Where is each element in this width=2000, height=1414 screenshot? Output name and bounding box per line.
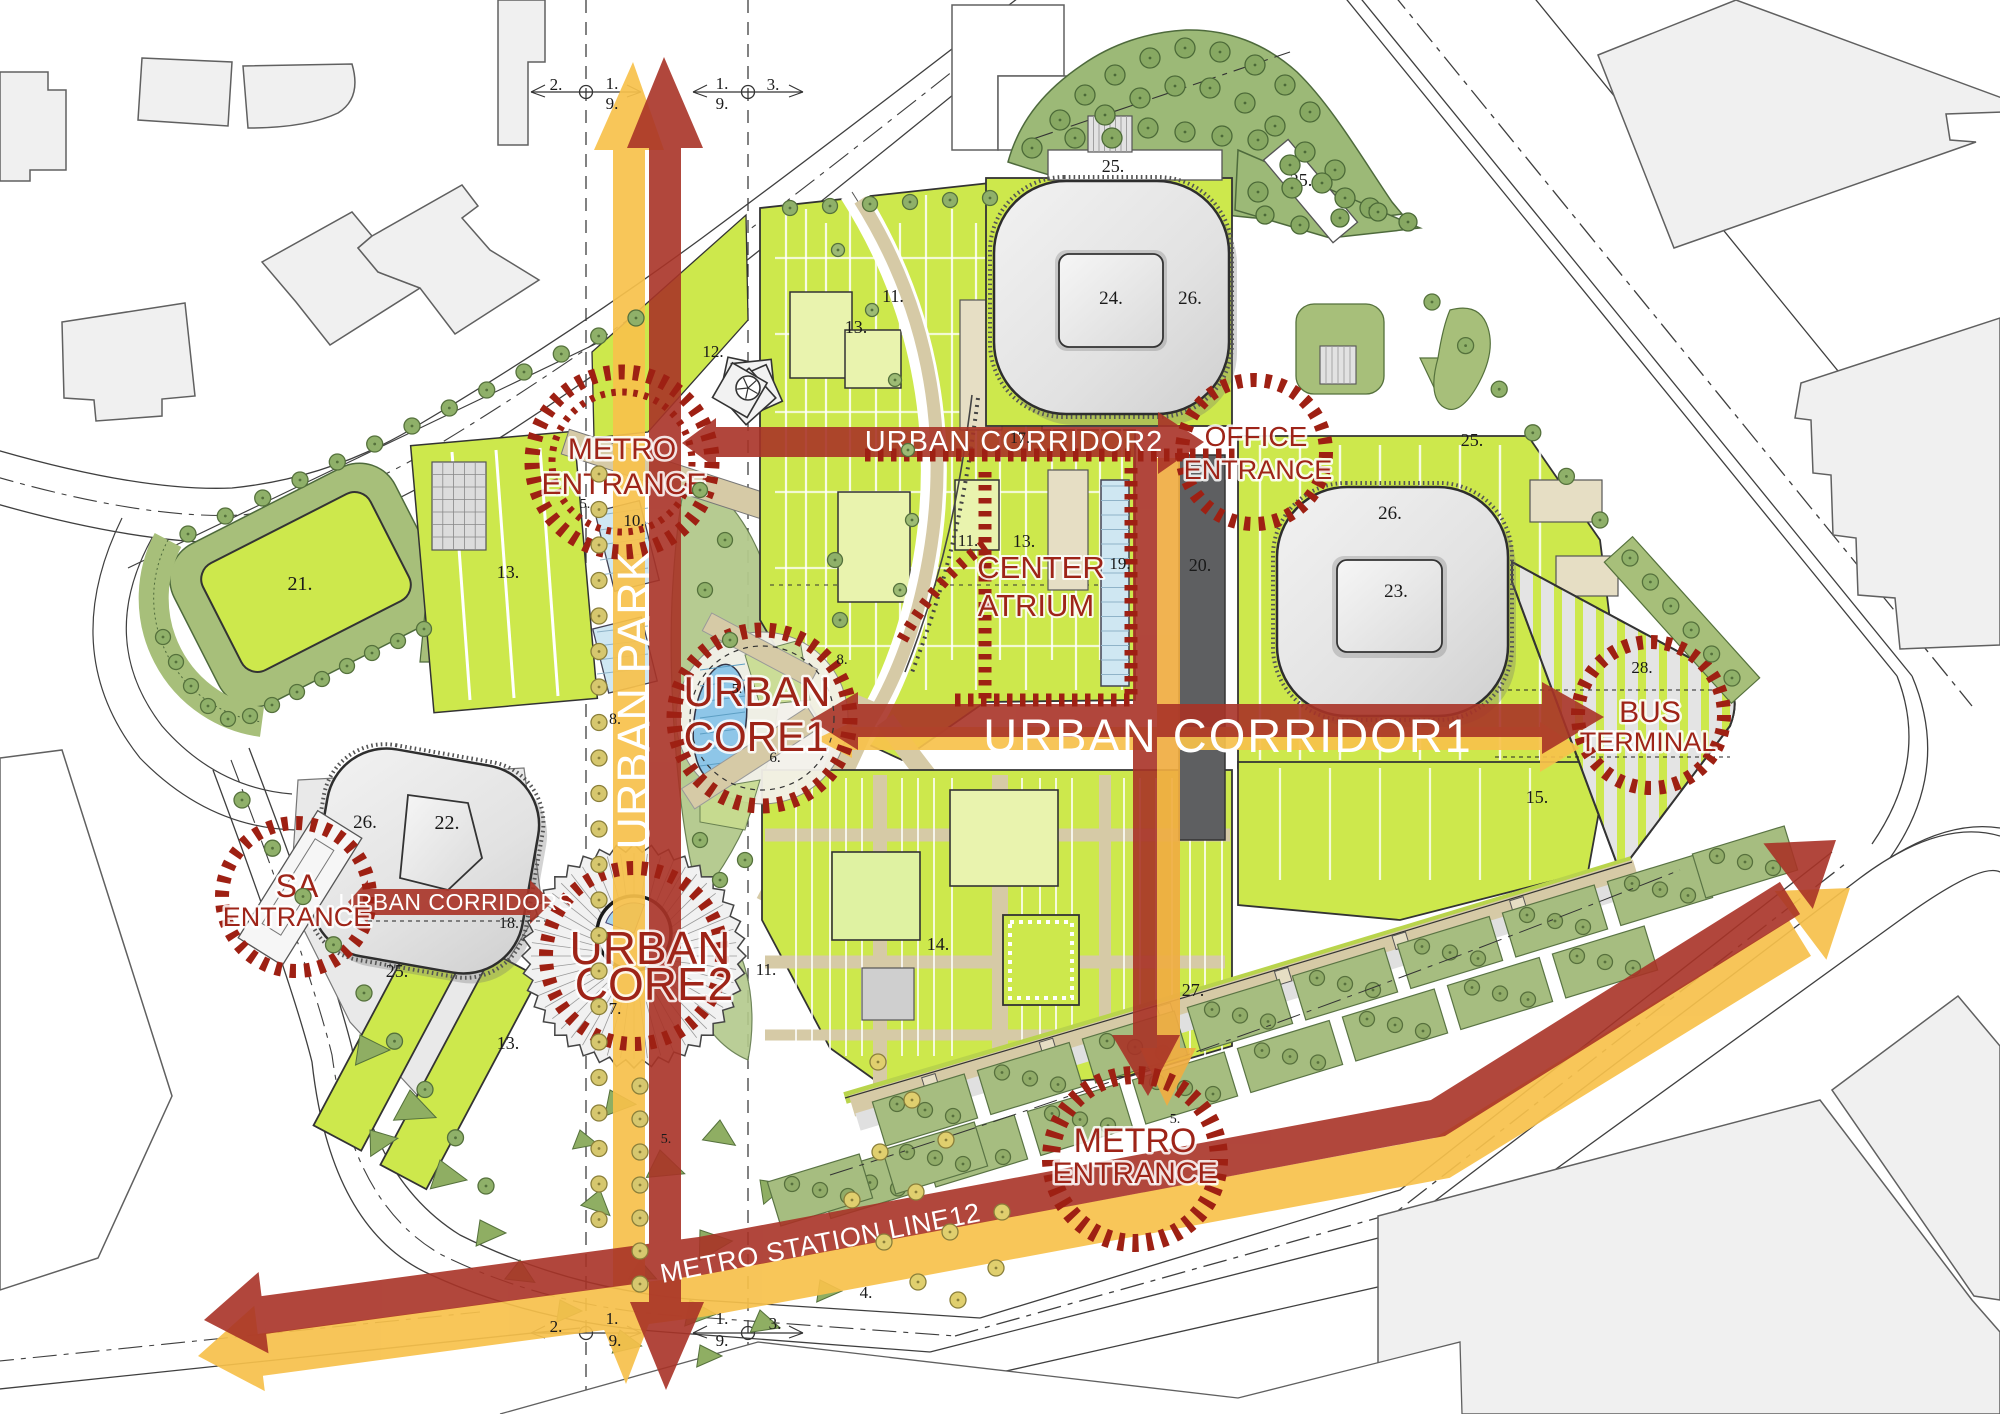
svg-text:TERMINAL: TERMINAL — [1580, 727, 1717, 757]
svg-text:5.: 5. — [580, 497, 591, 512]
svg-text:13.: 13. — [845, 317, 868, 337]
svg-text:9.: 9. — [606, 94, 619, 113]
svg-text:BUS: BUS — [1619, 696, 1681, 729]
svg-text:1.: 1. — [716, 1309, 729, 1328]
svg-text:8.: 8. — [609, 711, 621, 728]
svg-text:13.: 13. — [1013, 531, 1036, 551]
svg-text:3.: 3. — [767, 75, 780, 94]
svg-text:URBAN: URBAN — [683, 668, 830, 715]
svg-text:5.: 5. — [732, 682, 743, 697]
svg-text:1.: 1. — [606, 74, 619, 93]
svg-text:ENTRANCE: ENTRANCE — [223, 902, 372, 932]
svg-text:URBAN CORRIDOR1: URBAN CORRIDOR1 — [983, 709, 1473, 762]
svg-text:URBAN PARK: URBAN PARK — [608, 550, 659, 849]
svg-text:ATRIUM: ATRIUM — [978, 588, 1095, 623]
svg-text:6.: 6. — [769, 750, 780, 766]
svg-text:9.: 9. — [716, 1331, 729, 1350]
svg-text:13.: 13. — [497, 1033, 520, 1053]
svg-text:1.: 1. — [716, 74, 729, 93]
svg-text:25.: 25. — [386, 961, 409, 981]
svg-text:11.: 11. — [882, 286, 904, 306]
svg-text:7.: 7. — [609, 999, 622, 1018]
svg-text:4.: 4. — [860, 1283, 873, 1302]
svg-text:9.: 9. — [716, 94, 729, 113]
svg-text:3.: 3. — [769, 1314, 782, 1333]
svg-text:METRO: METRO — [568, 433, 676, 466]
svg-text:12.: 12. — [702, 342, 723, 361]
svg-text:2.: 2. — [550, 75, 563, 94]
svg-text:25.: 25. — [1461, 430, 1484, 450]
svg-text:24.: 24. — [1099, 288, 1123, 309]
svg-text:10.: 10. — [623, 511, 644, 530]
svg-text:25.: 25. — [1102, 156, 1125, 176]
svg-text:22.: 22. — [435, 812, 460, 834]
svg-text:27.: 27. — [1182, 980, 1205, 1000]
svg-text:26.: 26. — [353, 812, 377, 833]
svg-text:26.: 26. — [1378, 503, 1402, 524]
svg-text:14.: 14. — [927, 934, 950, 954]
svg-text:21.: 21. — [288, 573, 313, 595]
svg-text:5.: 5. — [661, 1132, 672, 1147]
svg-text:5.: 5. — [1170, 1112, 1181, 1127]
svg-text:1.: 1. — [606, 1309, 619, 1328]
svg-text:ENTRANCE: ENTRANCE — [541, 468, 706, 501]
svg-text:11.: 11. — [756, 960, 777, 979]
svg-text:15.: 15. — [1526, 787, 1549, 807]
svg-text:2.: 2. — [550, 1317, 563, 1336]
svg-text:CENTER: CENTER — [977, 550, 1104, 585]
svg-text:13.: 13. — [497, 562, 520, 582]
svg-text:9.: 9. — [609, 1331, 622, 1350]
svg-text:17.: 17. — [1010, 430, 1030, 447]
svg-text:18.: 18. — [499, 915, 519, 932]
svg-text:11.: 11. — [958, 531, 979, 550]
svg-text:CORE1: CORE1 — [684, 713, 829, 760]
svg-text:20.: 20. — [1189, 555, 1212, 575]
svg-text:ENTRANCE: ENTRANCE — [1052, 1157, 1217, 1190]
svg-text:19.: 19. — [1109, 554, 1130, 573]
svg-text:ENTRANCE: ENTRANCE — [1184, 455, 1333, 485]
svg-text:23.: 23. — [1384, 581, 1408, 602]
svg-text:26.: 26. — [1178, 288, 1202, 309]
svg-text:URBAN CORRIDORS: URBAN CORRIDORS — [339, 889, 574, 915]
svg-text:8.: 8. — [836, 652, 847, 668]
svg-text:OFFICE: OFFICE — [1205, 421, 1308, 452]
svg-text:28.: 28. — [1631, 658, 1652, 677]
svg-text:METRO: METRO — [1074, 1122, 1197, 1160]
